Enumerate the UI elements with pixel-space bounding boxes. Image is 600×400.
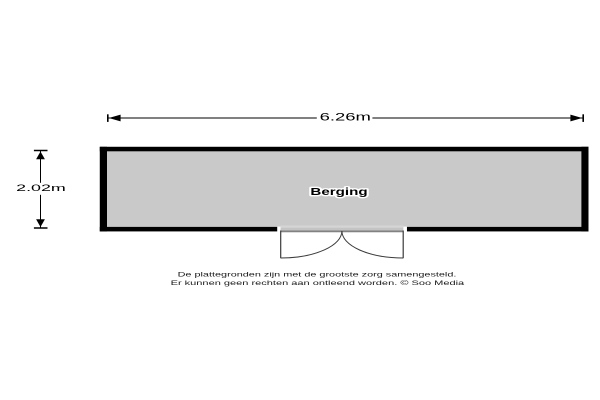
svg-text:2.02m: 2.02m xyxy=(16,183,66,193)
svg-text:De plattegronden zijn met de g: De plattegronden zijn met de grootste zo… xyxy=(178,272,457,279)
svg-text:6.26m: 6.26m xyxy=(320,111,372,123)
svg-text:Berging: Berging xyxy=(310,187,367,198)
svg-text:Er kunnen geen rechten aan ont: Er kunnen geen rechten aan ontleend word… xyxy=(171,279,465,287)
